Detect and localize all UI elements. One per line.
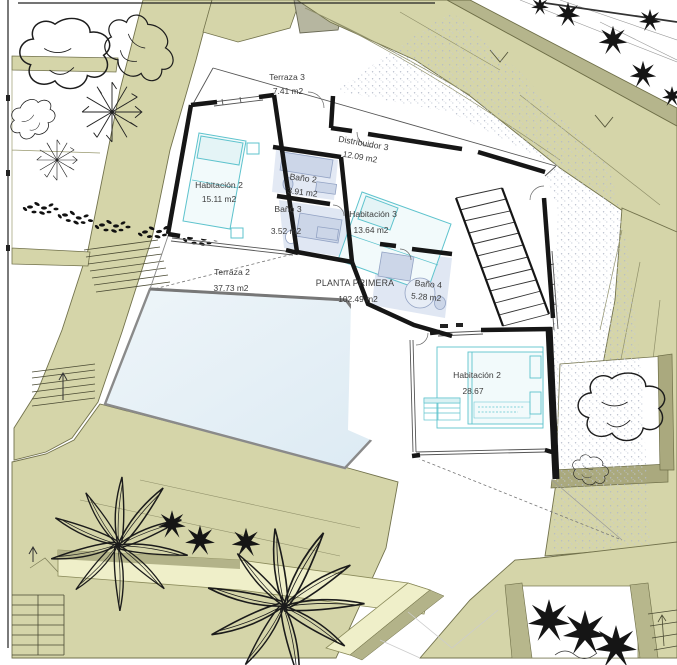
site-plan-svg: Terraza 3 7.41 m2 Distribuidor 3 12.09 m…	[0, 0, 677, 665]
svg-text:Terraza 2: Terraza 2	[214, 267, 250, 277]
shower4	[378, 252, 414, 281]
shrub-icon	[22, 201, 58, 215]
svg-text:Habitación 2: Habitación 2	[453, 370, 501, 380]
svg-text:37.73 m2: 37.73 m2	[214, 283, 249, 293]
svg-text:PLANTA PRIMERA: PLANTA PRIMERA	[316, 278, 394, 288]
svg-text:15.11 m2: 15.11 m2	[202, 194, 237, 204]
svg-text:28.67: 28.67	[463, 386, 484, 396]
svg-text:Terraza 3: Terraza 3	[269, 72, 305, 82]
svg-text:102.49 m2: 102.49 m2	[338, 294, 378, 304]
svg-text:13.64 m2: 13.64 m2	[354, 225, 389, 235]
room-label-terraza-2: Terraza 2 37.73 m2	[214, 267, 251, 293]
shrub-icon	[56, 208, 94, 227]
svg-text:3.52 m2: 3.52 m2	[271, 226, 302, 236]
svg-text:Baño 3: Baño 3	[274, 204, 301, 214]
tree-icon	[37, 140, 78, 181]
svg-text:Habitación 3: Habitación 3	[349, 209, 397, 219]
pine-icon	[599, 26, 628, 55]
pine-icon	[630, 61, 656, 87]
tree-icon	[20, 18, 110, 88]
site-plan: Terraza 3 7.41 m2 Distribuidor 3 12.09 m…	[0, 0, 677, 665]
svg-text:Habitación 2: Habitación 2	[195, 180, 243, 190]
sink3	[316, 227, 338, 241]
svg-text:7.41 m2: 7.41 m2	[273, 86, 304, 96]
pine-icon	[531, 0, 549, 15]
